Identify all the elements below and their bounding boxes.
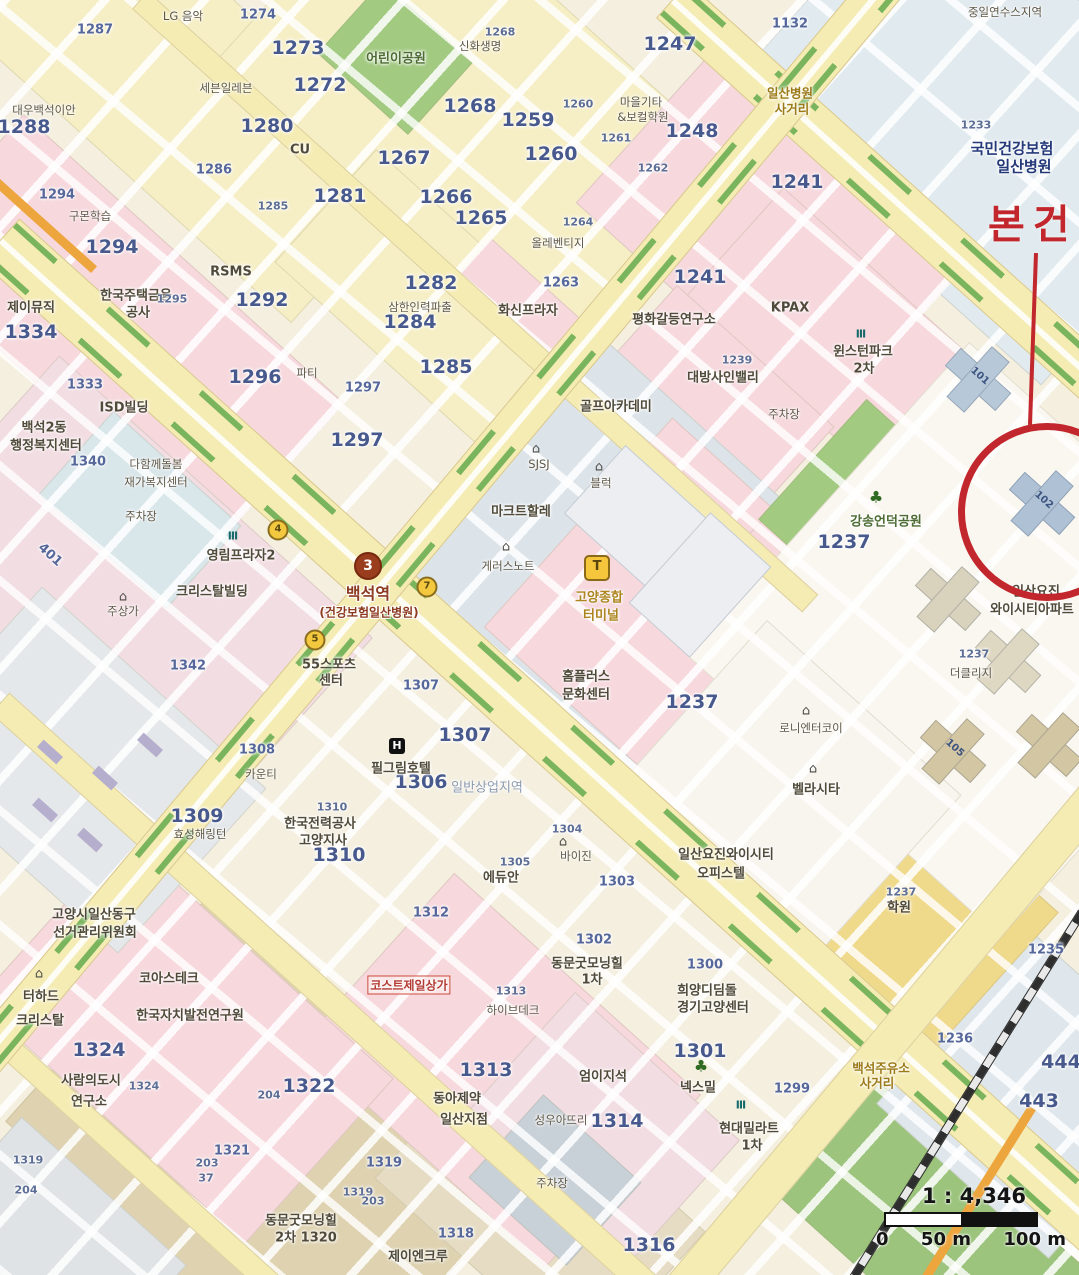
map-label: 1262 <box>638 162 669 175</box>
map-label: 1286 <box>196 163 232 178</box>
map-label: 1299 <box>774 1082 810 1097</box>
map-label: 37 <box>198 1172 213 1185</box>
map-label: 203 <box>196 1157 219 1170</box>
map-label: 1285 <box>420 356 473 378</box>
map-label: 1316 <box>623 1234 676 1256</box>
map-label: 1322 <box>283 1075 336 1097</box>
map-label: 1260 <box>563 98 594 111</box>
map-label: 백석역 <box>346 580 390 604</box>
map-label: 학원 <box>887 897 911 916</box>
map-label: 크리스탈빌딩 <box>176 581 248 600</box>
map-label: 마을기타 <box>620 94 662 110</box>
map-label: 선거관리위원회 <box>53 922 137 941</box>
map-label: 1132 <box>772 17 808 32</box>
map-label: 1301 <box>674 1040 727 1062</box>
map-label: 터하드 <box>23 986 59 1005</box>
map-label: 중일연수스지역 <box>968 4 1042 20</box>
map-label: 1307 <box>403 679 439 694</box>
scale-tick: 50 m <box>921 1229 971 1250</box>
map-scale: 1 : 4,346 050 m100 m <box>876 1184 1072 1250</box>
map-label: 1233 <box>961 119 992 132</box>
map-label: 블럭 <box>590 475 611 491</box>
map-label: 1272 <box>294 74 347 96</box>
map-label: 1274 <box>240 8 276 23</box>
exit-badge: 5 <box>305 630 326 651</box>
map-label: 문화센터 <box>562 684 610 703</box>
building-icon: ⌂ <box>502 540 510 555</box>
map-label: CU <box>290 143 310 158</box>
building-icon: ⌂ <box>809 762 817 777</box>
map-label: 고양종합 <box>575 587 623 606</box>
map-label: 2차 <box>853 358 874 377</box>
map-label: 1309 <box>171 805 224 827</box>
map-label: ISD빌딩 <box>100 397 149 416</box>
map-label: 어린이공원 <box>366 48 426 67</box>
map-label: 1334 <box>5 321 58 343</box>
map-label: 1308 <box>239 743 275 758</box>
map-label: 일반상업지역 <box>451 777 523 796</box>
map-label: 1321 <box>214 1144 250 1159</box>
map-label: 1294 <box>86 236 139 258</box>
map-label: 1284 <box>384 311 437 333</box>
map-label: 1314 <box>591 1110 644 1132</box>
map-label: 1292 <box>236 289 289 311</box>
map-label: 1324 <box>73 1039 126 1061</box>
map-label: 연구소 <box>71 1091 107 1110</box>
map-label: 1241 <box>674 266 727 288</box>
tree-icon: ♣ <box>869 488 883 507</box>
map-label: RSMS <box>210 265 252 280</box>
map-label: 1313 <box>460 1059 513 1081</box>
map-label: 사거리 <box>775 99 810 118</box>
map-label: (건강보험일산병원) <box>319 604 418 621</box>
map-label: 1237 <box>666 691 719 713</box>
building-icon: ⌂ <box>595 460 603 475</box>
map-label: 골프아카데미 <box>580 396 652 415</box>
map-label: 에듀안 <box>483 867 519 886</box>
map-label: 백석2동 <box>22 417 67 436</box>
map-label: 1237 <box>818 531 871 553</box>
map-label: 1241 <box>771 171 824 193</box>
map-label: 게러스노트 <box>482 558 535 574</box>
map-label: 203 <box>362 1195 385 1208</box>
map-label: 1285 <box>258 200 289 213</box>
map-label: 와이시티아파트 <box>990 599 1074 618</box>
map-label: KPAX <box>771 301 810 316</box>
map-label: 평화갈등연구소 <box>632 309 716 328</box>
map-label: 더클리지 <box>950 665 992 681</box>
map-label: 1261 <box>601 132 632 145</box>
map-label: 주차장 <box>536 1175 568 1191</box>
map-label: 오피스텔 <box>697 863 745 882</box>
map-label: 카운티 <box>245 766 277 782</box>
map-label: 구몬학습 <box>69 208 111 224</box>
map-label: 1273 <box>272 37 325 59</box>
map-label: 올레벤티지 <box>532 235 585 251</box>
map-label: LG 음악 <box>163 8 203 24</box>
map-label: 1259 <box>502 109 555 131</box>
map-label: 1265 <box>455 207 508 229</box>
map-label: 행정복지센터 <box>10 435 82 454</box>
map-label: 화신프라자 <box>498 300 558 319</box>
map-label: 1282 <box>405 272 458 294</box>
map-label: SJSJ <box>528 457 549 471</box>
building-icon: ⌂ <box>35 967 43 982</box>
map-label: 1268 <box>444 95 497 117</box>
map-label: 1236 <box>937 1032 973 1047</box>
map-label: 1297 <box>331 429 384 451</box>
map-label: 1266 <box>420 186 473 208</box>
map-label: 1239 <box>722 354 753 367</box>
map-label: 1296 <box>229 366 282 388</box>
scale-ticks: 050 m100 m <box>876 1229 1066 1250</box>
map-label: 마크트할레 <box>491 501 551 520</box>
map-label: 1302 <box>576 933 612 948</box>
map-label: 1247 <box>644 33 697 55</box>
building-icon: ⌂ <box>532 442 540 457</box>
map-label: 1318 <box>438 1227 474 1242</box>
map-label: 동아제약 <box>433 1088 481 1107</box>
scale-bar <box>884 1212 1038 1227</box>
map-canvas: 101102105 3475♣♣⌂⌂⌂⌂⌂⌂⌂⌂ⅢⅢⅢHT LG 음악12741… <box>0 0 1079 1275</box>
map-label: &보컬학원 <box>617 109 668 125</box>
map-label: 1333 <box>67 378 103 393</box>
scale-bar-white <box>886 1214 961 1225</box>
map-label: 센터 <box>319 670 343 689</box>
map-label: 1차 <box>741 1135 762 1154</box>
map-label: 바이진 <box>560 848 592 864</box>
map-label: 주차장 <box>125 508 157 524</box>
map-label: 성우아뜨리 <box>535 1112 588 1128</box>
exit-badge: 4 <box>268 520 289 541</box>
map-label: 204 <box>258 1089 281 1102</box>
map-label: 대방사인밸리 <box>687 367 759 386</box>
scale-tick: 0 <box>876 1229 889 1250</box>
map-label: 일산요진와이시티 <box>678 844 774 863</box>
map-label: 로니엔터코이 <box>779 720 842 736</box>
scale-tick: 100 m <box>1003 1229 1066 1250</box>
map-label: 경기고양센터 <box>677 997 749 1016</box>
map-label: 1281 <box>314 185 367 207</box>
subway-line3-badge: 3 <box>354 552 382 580</box>
map-label: 1342 <box>170 659 206 674</box>
map-label: 고양시일산동구 <box>52 904 136 923</box>
map-label: 1297 <box>345 381 381 396</box>
map-label: 필그림호텔 <box>371 758 431 777</box>
map-label: 공사 <box>126 302 150 321</box>
map-label: 1264 <box>563 216 594 229</box>
map-label: 1295 <box>157 293 188 306</box>
map-label: 1303 <box>599 875 635 890</box>
map-label: 1260 <box>525 143 578 165</box>
map-label: 크리스탈 <box>16 1010 64 1029</box>
map-label: 한국자치발전연구원 <box>136 1005 244 1024</box>
map-label: 1237 <box>959 648 990 661</box>
map-label: 제이엔크루 <box>388 1246 448 1265</box>
map-label: 204 <box>15 1184 38 1197</box>
map-label: 1287 <box>77 23 113 38</box>
map-label: 홈플러스 <box>562 666 610 685</box>
map-label: 1294 <box>39 188 75 203</box>
terminal-icon: T <box>584 555 610 581</box>
map-label: 영림프라자2 <box>207 545 276 564</box>
map-label: 1267 <box>378 147 431 169</box>
map-label: 세븐일레븐 <box>200 80 253 96</box>
hotel-icon: H <box>389 738 405 754</box>
map-label: 주차장 <box>768 406 800 422</box>
map-label: 1319 <box>366 1156 402 1171</box>
map-label: 1319 <box>13 1154 44 1167</box>
map-label: 일산지점 <box>440 1109 488 1128</box>
map-label: 1차 <box>581 969 602 988</box>
map-label: 1324 <box>129 1080 160 1093</box>
map-label: 코아스테크 <box>139 968 199 987</box>
map-label: 1280 <box>241 115 294 137</box>
map-label: 1307 <box>439 724 492 746</box>
map-label: 1304 <box>552 823 583 836</box>
scale-ratio: 1 : 4,346 <box>876 1184 1072 1208</box>
map-label: 1340 <box>70 455 106 470</box>
map-label: 1268 <box>485 26 516 39</box>
apartment-icon: Ⅲ <box>228 530 238 543</box>
map-label: 1300 <box>687 958 723 973</box>
map-label: 444 <box>1041 1051 1079 1073</box>
map-label: 2차 1320 <box>275 1227 337 1246</box>
map-label: 코스트제일상가 <box>367 976 450 995</box>
building-icon: ⌂ <box>802 704 810 719</box>
map-label: 사람의도시 <box>61 1070 121 1089</box>
map-label: 효성해링턴 <box>174 826 227 842</box>
map-label: 제이뮤직 <box>7 297 55 316</box>
scale-bar-black <box>961 1214 1036 1225</box>
map-label: 주상가 <box>107 603 139 619</box>
map-label: 1313 <box>496 985 527 998</box>
map-label: 1248 <box>666 120 719 142</box>
map-label: 443 <box>1019 1090 1059 1112</box>
map-label: 1288 <box>0 116 50 138</box>
subject-label: 본건 <box>988 192 1078 250</box>
map-label: 하이브데크 <box>487 1002 540 1018</box>
map-label: 사거리 <box>860 1073 895 1092</box>
exit-badge: 7 <box>417 577 438 598</box>
map-label: 벨라시타 <box>792 779 840 798</box>
map-label: 다함께돌봄 <box>130 456 183 472</box>
map-label: 1235 <box>1028 943 1064 958</box>
map-label: 파티 <box>296 365 317 381</box>
map-label: 신화생명 <box>459 38 501 54</box>
map-label: 1310 <box>313 844 366 866</box>
apartment-icon: Ⅲ <box>736 1099 746 1112</box>
map-label: 1263 <box>543 276 579 291</box>
map-label: 일산병원 <box>996 156 1051 177</box>
map-label: 재가복지센터 <box>124 474 187 490</box>
map-label: 넥스밀 <box>680 1077 716 1096</box>
map-label: 터미널 <box>583 605 619 624</box>
map-label: 강송언덕공원 <box>850 511 922 530</box>
map-label: 엄이지석 <box>579 1066 627 1085</box>
apartment-icon: Ⅲ <box>856 328 866 341</box>
map-label: 1312 <box>413 906 449 921</box>
